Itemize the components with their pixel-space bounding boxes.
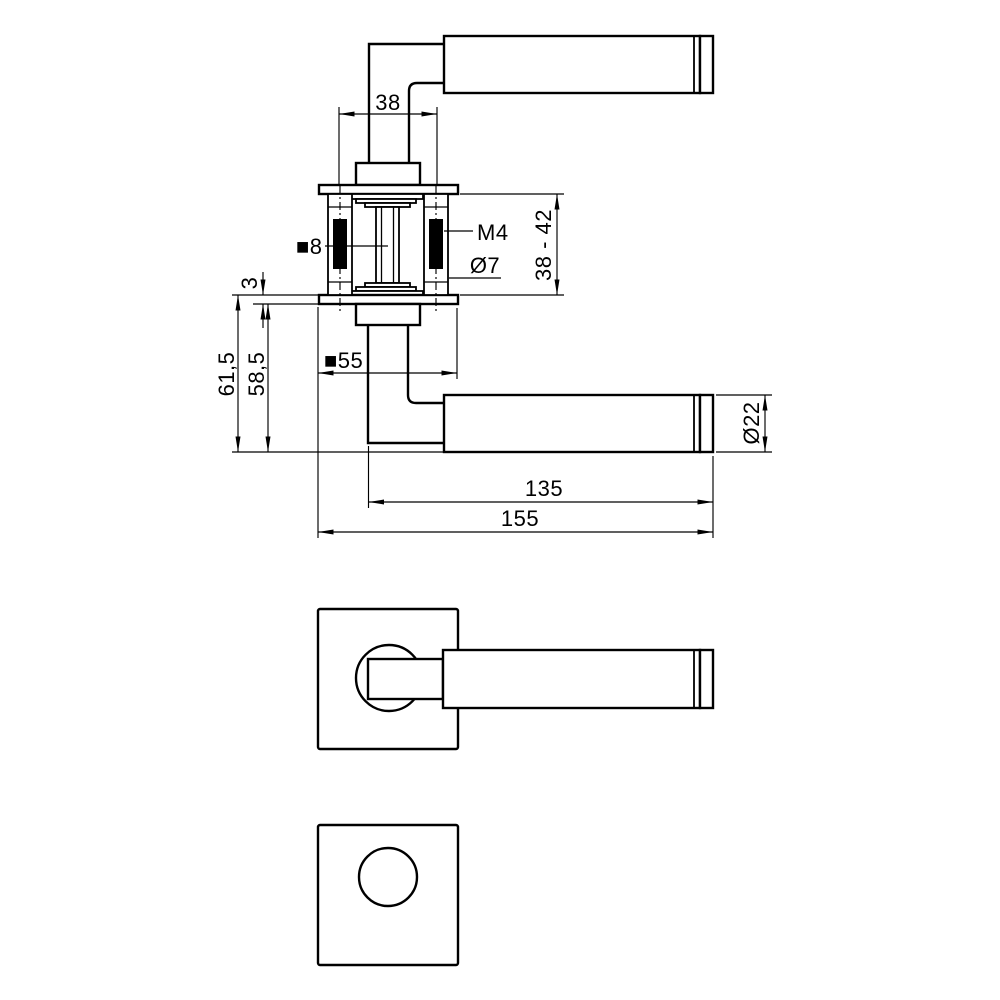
lower-lever-neck-inner-line xyxy=(408,325,444,403)
dim-3842-label: 38 - 42 xyxy=(531,209,556,281)
dimension-annotations: 38 38 - 42 M4 Ø7 ■8 3 61,5 58,5 ■55 xyxy=(214,90,772,538)
dim-135-label: 135 xyxy=(525,476,563,501)
upper-lever-grip xyxy=(444,36,700,93)
dim-o22-label: Ø22 xyxy=(739,401,764,444)
upper-lever-neck-inner-line xyxy=(409,83,444,164)
dim-o7-label: Ø7 xyxy=(470,253,500,278)
dim-38-label: 38 xyxy=(375,90,400,115)
lower-lever-neck-outer-line xyxy=(368,325,444,443)
dim-sq55-label: ■55 xyxy=(324,348,363,373)
dim-m4-label: M4 xyxy=(477,220,509,245)
dim-3-label: 3 xyxy=(237,277,262,290)
lower-lever-grip xyxy=(444,395,700,452)
dim-585-label: 58,5 xyxy=(244,352,269,397)
door-handle-technical-drawing: 38 38 - 42 M4 Ø7 ■8 3 61,5 58,5 ■55 xyxy=(0,0,1000,1000)
dim-615-label: 61,5 xyxy=(214,352,239,397)
front-lever-neck xyxy=(368,659,443,699)
front-grip-endcap xyxy=(700,650,713,708)
lower-collar xyxy=(356,304,420,325)
upper-collar xyxy=(356,163,420,185)
blind-rose-hole xyxy=(359,848,417,906)
dim-sq8-label: ■8 xyxy=(296,234,323,259)
upper-grip-endcap xyxy=(700,36,713,93)
technical-drawing-page: 38 38 - 42 M4 Ø7 ■8 3 61,5 58,5 ■55 xyxy=(0,0,1000,1000)
lower-grip-endcap xyxy=(700,395,713,452)
dim-155-label: 155 xyxy=(501,506,539,531)
spindle xyxy=(376,207,399,283)
blind-rose-view xyxy=(318,825,458,965)
front-lever-grip xyxy=(443,650,700,708)
front-view xyxy=(318,609,713,749)
